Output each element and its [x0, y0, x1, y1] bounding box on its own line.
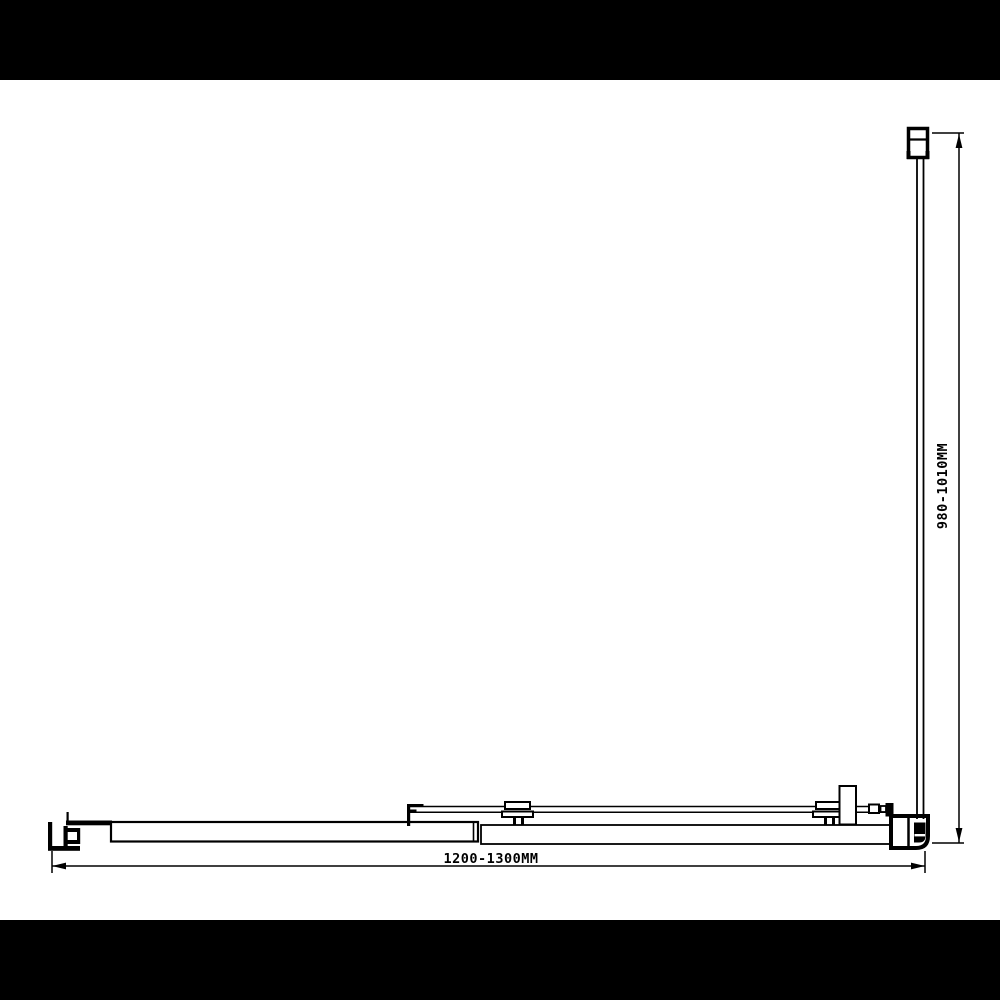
drawing-canvas: 1200-1300MM 980-1010MM	[0, 0, 1000, 1000]
height-dimension: 980-1010MM	[932, 133, 964, 843]
roller-bracket-1	[502, 802, 533, 826]
height-dimension-label: 980-1010MM	[935, 443, 951, 529]
width-dimension: 1200-1300MM	[52, 851, 925, 873]
side-glass-panel	[917, 157, 924, 819]
door-handle	[840, 786, 857, 825]
top-wall-bracket	[907, 129, 930, 160]
fixed-bottom-panel	[481, 825, 893, 844]
enclosure-diagram: 1200-1300MM 980-1010MM	[0, 0, 1000, 1000]
corner-post	[891, 816, 928, 848]
sliding-door-bar	[111, 822, 478, 842]
wall-profile-left	[48, 812, 112, 851]
width-dimension-label: 1200-1300MM	[444, 851, 539, 867]
